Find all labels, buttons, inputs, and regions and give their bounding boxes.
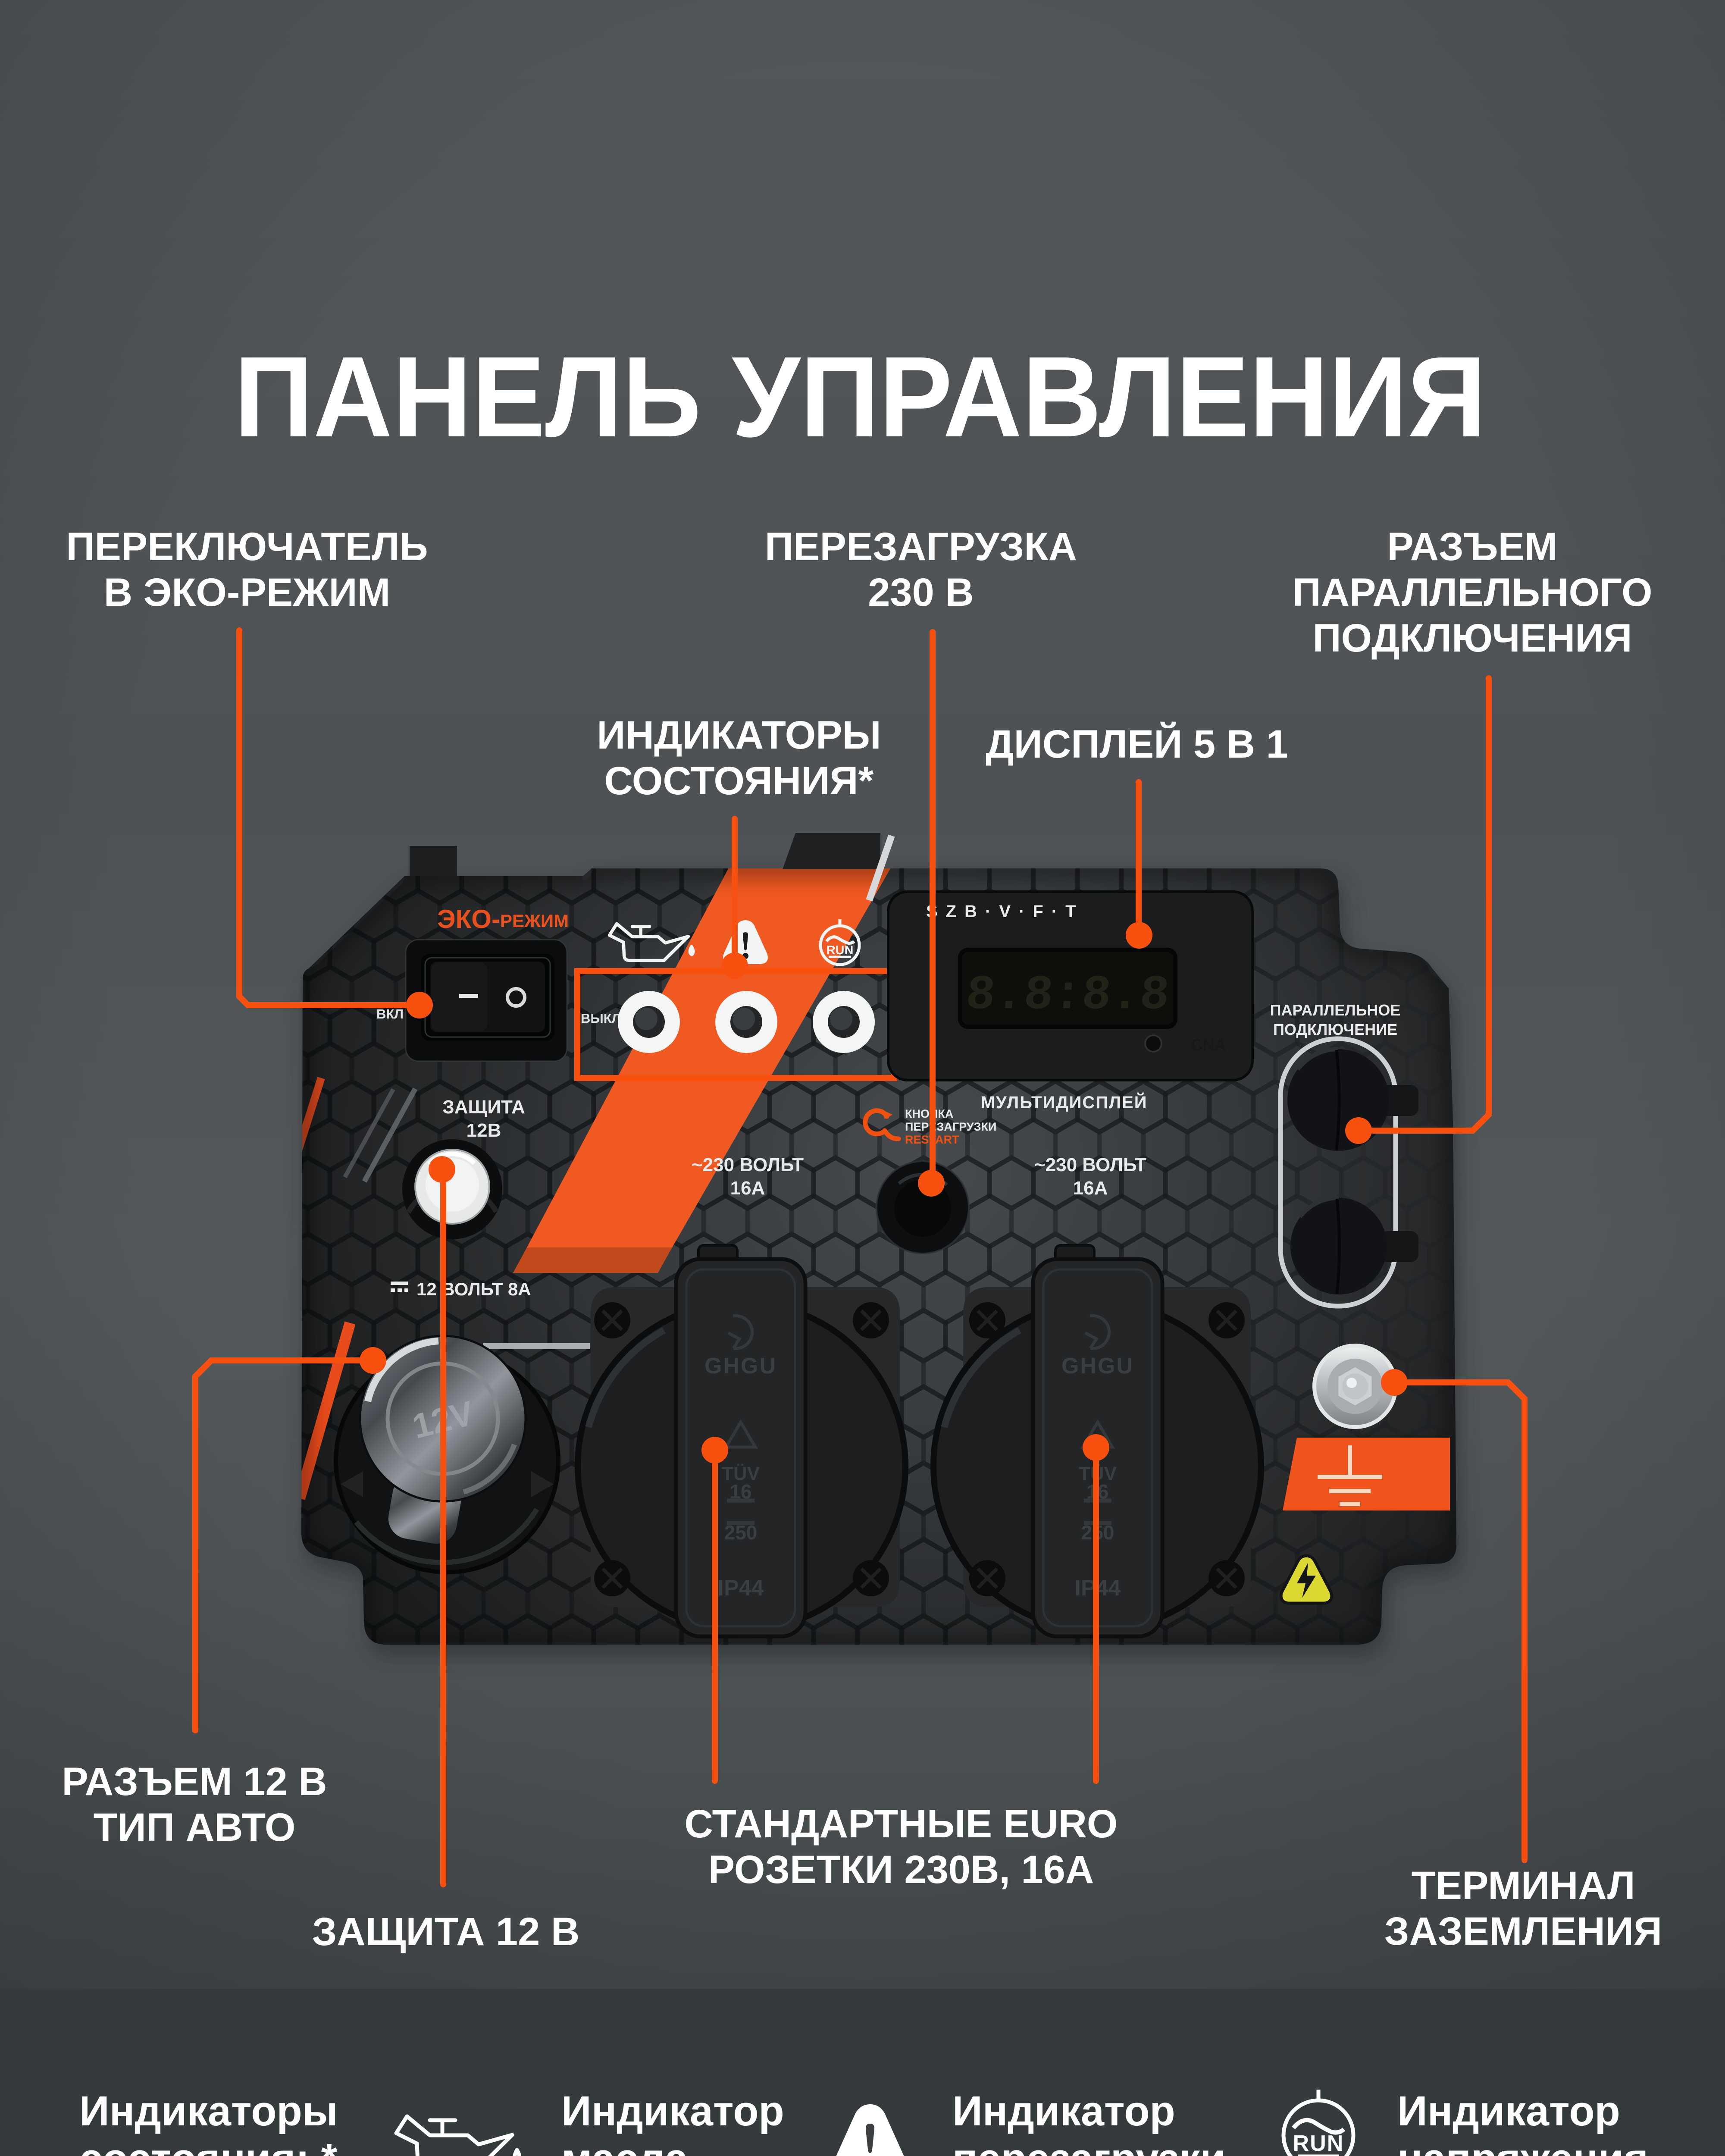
svg-text:CNA: CNA — [1191, 1036, 1226, 1054]
svg-text:8.8:8.8: 8.8:8.8 — [964, 968, 1171, 1023]
svg-text:GHGU: GHGU — [704, 1354, 777, 1379]
svg-text:Индикаторнапряжения: Индикаторнапряжения — [1397, 2087, 1648, 2156]
svg-text:SZB·V·F·T: SZB·V·F·T — [926, 902, 1084, 921]
svg-text:250: 250 — [724, 1521, 758, 1544]
svg-text:12 ВОЛЬТ 8А: 12 ВОЛЬТ 8А — [416, 1279, 531, 1299]
svg-text:ДИСПЛЕЙ 5 В 1: ДИСПЛЕЙ 5 В 1 — [986, 721, 1288, 766]
svg-text:IP44: IP44 — [718, 1576, 764, 1601]
svg-text:МУЛЬТИДИСПЛЕЙ: МУЛЬТИДИСПЛЕЙ — [980, 1092, 1147, 1112]
svg-text:ЗАЩИТА 12 В: ЗАЩИТА 12 В — [312, 1910, 580, 1954]
svg-text:Индикаторысостояния: *: Индикаторысостояния: * — [79, 2087, 338, 2156]
svg-text:RUN: RUN — [826, 943, 854, 957]
svg-text:ВЫКЛ: ВЫКЛ — [581, 1011, 621, 1026]
svg-text:RUN: RUN — [1293, 2131, 1344, 2156]
svg-text:GHGU: GHGU — [1061, 1354, 1134, 1379]
svg-text:ВКЛ: ВКЛ — [376, 1006, 404, 1022]
svg-text:16: 16 — [729, 1480, 751, 1503]
svg-text:ПАНЕЛЬ УПРАВЛЕНИЯ: ПАНЕЛЬ УПРАВЛЕНИЯ — [234, 333, 1487, 461]
